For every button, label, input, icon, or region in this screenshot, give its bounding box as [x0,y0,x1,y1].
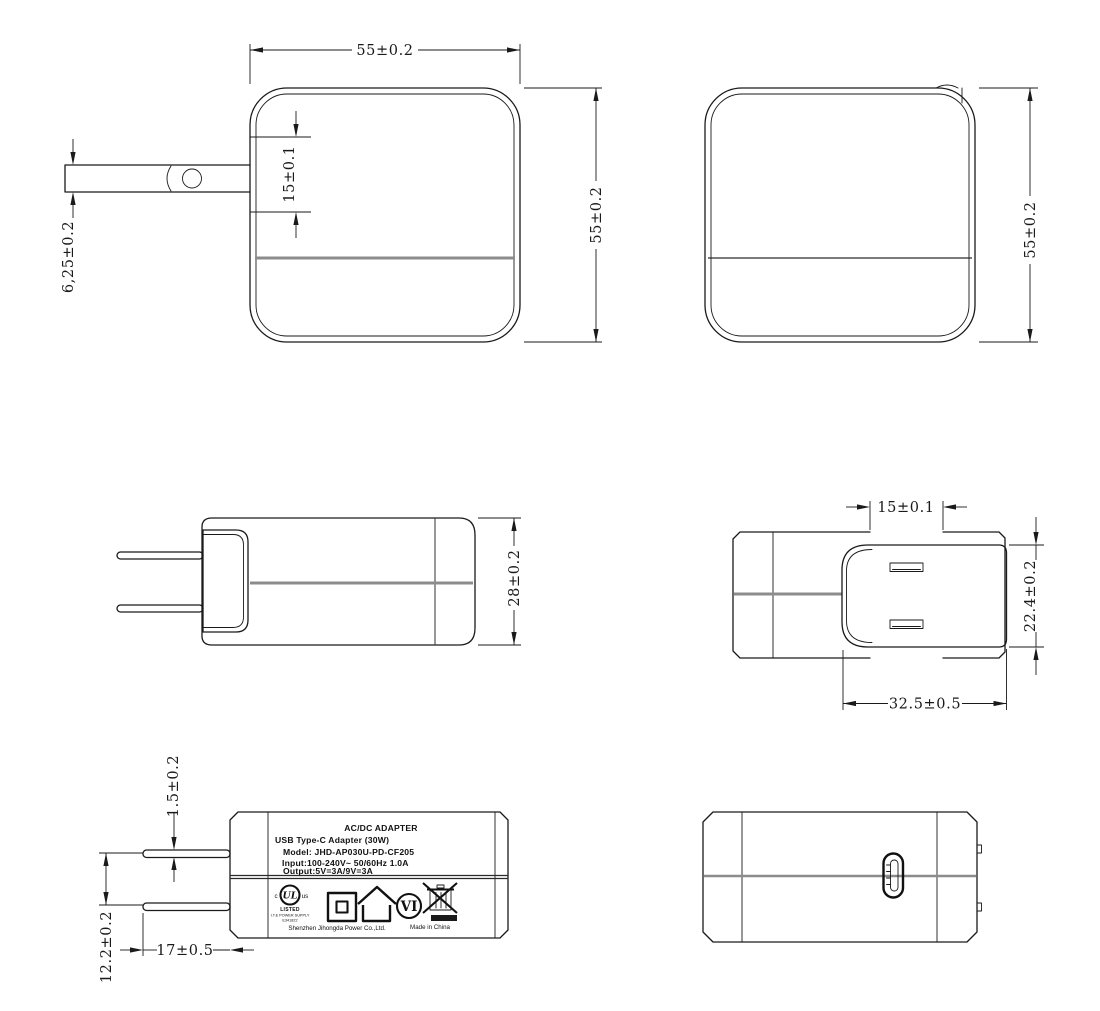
port-side-tab-top [977,845,982,853]
dim-plug-notch: 15±0.1 [846,500,967,530]
ac-prong-top [117,552,203,559]
side-view: 28±0.2 [117,518,523,645]
dim-side-depth: 28±0.2 [478,518,523,645]
rear-body-inner-line [711,94,969,336]
dim-front-notch: 15±0.1 [250,111,311,238]
label-subheading: USB Type-C Adapter (30W) [275,835,389,845]
blade-hole [183,169,202,188]
label-output: Output:5V=3A/9V=3A [283,866,373,876]
dim-plug-base-height-text: 22.4±0.2 [1023,560,1039,632]
ac-prong-bottom-2 [143,903,230,911]
efficiency-vi-icon: VI [397,894,421,918]
ul-file-text: E341822 [282,919,297,923]
prong-slot-top [890,563,923,572]
dim-front-width-text: 55±0.2 [356,43,413,59]
plug-base-end [842,545,1007,647]
dim-front-notch-text: 15±0.1 [282,145,298,202]
efficiency-vi-text: VI [400,899,418,915]
plug-base-side [203,530,248,632]
dim-front-height: 55±0.2 [524,88,605,342]
ul-c-text: c [274,893,277,900]
bottom-view: AC/DC ADAPTER USB Type-C Adapter (30W) M… [99,755,508,983]
class-ii-icon [328,893,356,921]
rear-view: 55±0.2 [705,85,1039,342]
weee-icon [423,883,457,921]
ul-listed-icon: UL c us LISTED I.T.E POWER SUPPLY E34182… [271,886,310,923]
dim-plug-notch-text: 15±0.1 [877,500,934,516]
prong-slot-bottom [890,620,923,629]
dim-prong-thickness: 1.5±0.2 [166,755,182,882]
ac-prong-bottom [117,605,203,612]
dim-rear-height: 55±0.2 [979,88,1039,342]
port-side-tab-bottom [977,903,982,911]
product-label: AC/DC ADAPTER USB Type-C Adapter (30W) M… [275,823,418,876]
dim-prong-gap-text: 12.2±0.2 [99,911,115,983]
top-body-right-outline [943,532,1005,658]
label-heading: AC/DC ADAPTER [344,823,418,833]
top-view: 15±0.1 22.4±0.2 32.5±0.5 [733,500,1044,713]
manufacturer-text: Shenzhen Jihongda Power Co.,Ltd. [288,925,386,932]
label-model: Model: JHD-AP030U-PD-CF205 [283,847,414,857]
dim-side-depth-text: 28±0.2 [507,549,523,606]
drawing-sheet: 55±0.2 55±0.2 15±0.1 6,25 [0,0,1100,1011]
dim-blade-offset: 6,25±0.2 [61,139,77,293]
dim-front-height-text: 55±0.2 [589,186,605,243]
adapter-dimension-drawing: 55±0.2 55±0.2 15±0.1 6,25 [0,0,1100,1011]
blade-fold-arc [167,166,171,191]
ul-mark-text: UL [283,891,298,902]
ul-listed-text: LISTED [280,907,300,913]
front-view: 55±0.2 55±0.2 15±0.1 6,25 [61,43,605,342]
dim-prong-length: 17±0.5 [120,913,254,959]
indoor-use-icon [358,887,396,921]
port-view [703,812,982,942]
dim-plug-base-width-text: 32.5±0.5 [889,697,961,713]
rear-body-outline [705,88,975,342]
dim-prong-gap: 12.2±0.2 [99,853,143,983]
front-body-outline [250,88,520,342]
dim-rear-height-text: 55±0.2 [1023,201,1039,258]
dim-front-width: 55±0.2 [250,43,520,84]
ul-category-text: I.T.E POWER SUPPLY [271,914,310,918]
dim-prong-length-text: 17±0.5 [156,943,213,959]
dim-blade-offset-text: 6,25±0.2 [61,221,77,293]
dim-prong-thickness-text: 1.5±0.2 [166,755,182,817]
ac-prong-top-2 [143,850,230,858]
dim-plug-base-height: 22.4±0.2 [1009,517,1044,675]
ul-us-text: us [302,893,309,900]
plug-blade [65,165,250,192]
origin-text: Made in China [410,924,450,931]
